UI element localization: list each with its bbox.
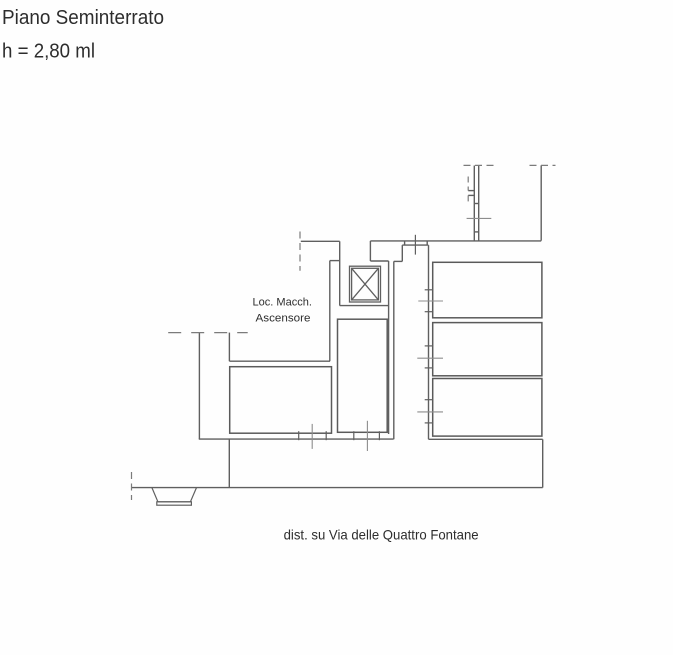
svg-text:dist. su Via delle Quattro Fon: dist. su Via delle Quattro Fontane — [284, 526, 479, 542]
svg-text:Piano Seminterrato: Piano Seminterrato — [2, 7, 164, 29]
svg-text:h = 2,80 ml: h = 2,80 ml — [2, 41, 95, 63]
svg-text:Loc. Macch.: Loc. Macch. — [253, 296, 313, 308]
svg-text:Ascensore: Ascensore — [256, 313, 311, 325]
